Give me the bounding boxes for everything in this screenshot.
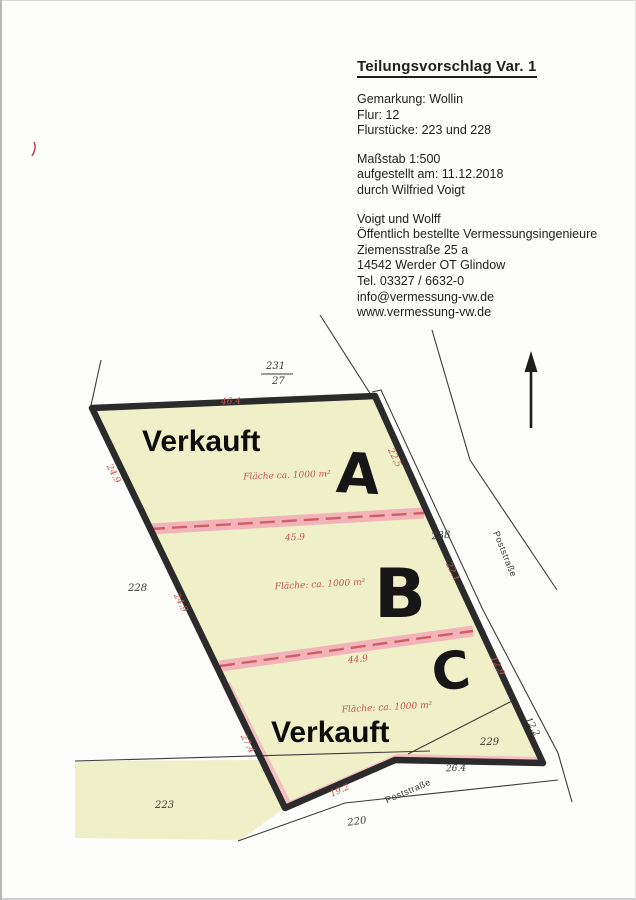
parcel-number-27: 27 xyxy=(272,376,285,387)
red-tick-mark xyxy=(32,142,35,156)
parcel-223-fill xyxy=(75,760,285,840)
sold-label-bottom: Verkauft xyxy=(271,716,389,750)
title-block: Teilungsvorschlag Var. 1 Gemarkung: Woll… xyxy=(357,58,619,334)
lot-letter-b: B xyxy=(374,561,426,629)
scale-info: Maßstab 1:500 aufgestellt am: 11.12.2018… xyxy=(357,152,619,199)
dim-top-a: 46.4 xyxy=(221,397,241,408)
parcel-number-231: 231 xyxy=(266,361,285,372)
dim-bottom: 26.4 xyxy=(446,764,466,775)
north-arrow-icon xyxy=(525,351,538,428)
surveyor-info: Voigt und Wolff Öffentlich bestellte Ver… xyxy=(357,212,619,321)
road-east-edge xyxy=(432,330,557,590)
lot-letter-c: C xyxy=(429,644,473,700)
parcel-number-228: 228 xyxy=(128,583,147,594)
parcel-info: Gemarkung: Wollin Flur: 12 Flurstücke: 2… xyxy=(357,92,619,139)
dim-mid-b: 45.9 xyxy=(285,532,306,543)
dim-mid-c: 44.9 xyxy=(348,654,369,666)
sold-label-top: Verkauft xyxy=(142,425,260,459)
parcel-number-229: 229 xyxy=(480,737,499,748)
lot-letter-a: A xyxy=(335,446,381,504)
parcel-number-223: 223 xyxy=(155,800,174,811)
page-title: Teilungsvorschlag Var. 1 xyxy=(357,58,537,78)
parcel-number-238: 238 xyxy=(431,530,451,543)
scanned-survey-page: Teilungsvorschlag Var. 1 Gemarkung: Woll… xyxy=(0,0,636,900)
